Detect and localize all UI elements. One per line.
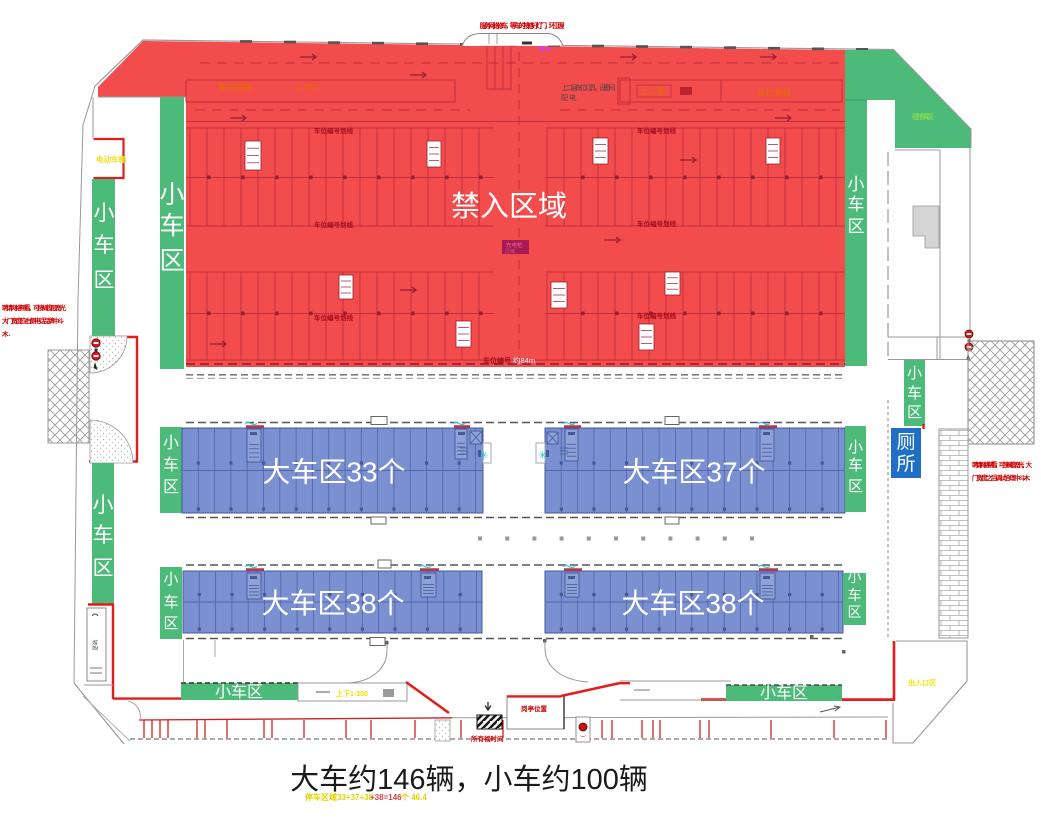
svg-text:个 46.4: 个 46.4 bbox=[400, 792, 427, 802]
svg-text:大车区33个: 大车区33个 bbox=[262, 457, 405, 488]
svg-text:+38=146: +38=146 bbox=[370, 793, 402, 802]
svg-text:小车区: 小车区 bbox=[760, 684, 808, 702]
svg-text:电动车棚: 电动车棚 bbox=[96, 154, 126, 164]
svg-text:小: 小 bbox=[94, 202, 115, 225]
svg-text:临时停车区: 临时停车区 bbox=[912, 112, 934, 121]
svg-text:区: 区 bbox=[159, 247, 184, 275]
svg-text:车: 车 bbox=[163, 456, 179, 474]
svg-text:车: 车 bbox=[163, 594, 178, 611]
svg-text:所有福时间: 所有福时间 bbox=[471, 734, 504, 743]
svg-text:区: 区 bbox=[907, 404, 922, 421]
svg-text:大车区37个: 大车区37个 bbox=[622, 457, 765, 488]
svg-text:小: 小 bbox=[848, 439, 863, 456]
svg-text:小: 小 bbox=[907, 365, 922, 382]
svg-text:区: 区 bbox=[93, 557, 114, 580]
svg-text:区: 区 bbox=[848, 604, 862, 620]
svg-text:车位编号划线: 车位编号划线 bbox=[314, 220, 354, 229]
svg-text:车: 车 bbox=[907, 385, 922, 402]
svg-text:小: 小 bbox=[848, 569, 862, 585]
svg-text:出入口区: 出入口区 bbox=[908, 678, 936, 687]
svg-text:区: 区 bbox=[848, 217, 865, 236]
svg-text:区: 区 bbox=[163, 615, 178, 632]
svg-text:小: 小 bbox=[163, 434, 179, 452]
svg-text:充电桩: 充电桩 bbox=[506, 241, 523, 249]
svg-text:停车区域33+37+38: 停车区域33+37+38 bbox=[305, 792, 374, 802]
svg-text:车位编号划线: 车位编号划线 bbox=[314, 126, 354, 135]
svg-text:1-200: 1-200 bbox=[296, 82, 318, 92]
svg-text:车位划线: 车位划线 bbox=[218, 82, 253, 92]
svg-text:✳: ✳ bbox=[538, 450, 547, 462]
svg-text:小: 小 bbox=[848, 175, 865, 194]
svg-text:厕: 厕 bbox=[896, 432, 915, 453]
svg-text:坡道: 坡道 bbox=[91, 639, 99, 651]
svg-text:车: 车 bbox=[94, 234, 115, 257]
svg-text:大车区38个: 大车区38个 bbox=[261, 588, 404, 619]
svg-text:车位编号划线: 车位编号划线 bbox=[637, 126, 677, 135]
svg-text:聘请网络帮看，可按绳揽限宽光: 聘请网络帮看，可按绳揽限宽光 bbox=[2, 303, 67, 312]
svg-text:区: 区 bbox=[94, 269, 115, 292]
svg-text:区: 区 bbox=[848, 478, 863, 495]
svg-text:大门宽度应右侧电话品牌中斗: 大门宽度应右侧电话品牌中斗 bbox=[2, 316, 65, 325]
svg-text:车位划线: 车位划线 bbox=[757, 88, 792, 98]
svg-text:小: 小 bbox=[159, 181, 184, 209]
svg-text:小: 小 bbox=[93, 494, 114, 517]
svg-text:木.: 木. bbox=[1, 329, 11, 338]
svg-text:小: 小 bbox=[163, 571, 178, 588]
svg-text:所: 所 bbox=[896, 453, 915, 475]
svg-text:车: 车 bbox=[159, 212, 184, 240]
svg-text:小车区: 小车区 bbox=[215, 683, 263, 701]
svg-text:车位编号划线: 车位编号划线 bbox=[637, 219, 677, 228]
svg-text:上二层: 上二层 bbox=[640, 86, 666, 96]
svg-text:门宽度之后调试合理中斗木.: 门宽度之后调试合理中斗木. bbox=[972, 473, 1031, 482]
svg-text:大车区38个: 大车区38个 bbox=[621, 588, 764, 619]
svg-text:聘请网络帮看，可按绳揽宽光，大: 聘请网络帮看，可按绳揽宽光，大 bbox=[972, 460, 1033, 469]
svg-text:车位编号划线: 车位编号划线 bbox=[637, 311, 677, 320]
svg-text:车: 车 bbox=[93, 524, 114, 547]
svg-text:上二层车位灯具，设备间.: 上二层车位灯具，设备间. bbox=[561, 83, 615, 92]
svg-text:区域: 区域 bbox=[505, 248, 515, 255]
svg-text:车位编号划线: 车位编号划线 bbox=[314, 313, 354, 322]
svg-text:车: 车 bbox=[848, 195, 865, 214]
svg-text:上下1-200: 上下1-200 bbox=[336, 689, 368, 698]
svg-text:服务网络修车，等车的按修好灯门，环卫理.: 服务网络修车，等车的按修好灯门，环卫理. bbox=[480, 21, 565, 30]
svg-text:车: 车 bbox=[848, 587, 862, 603]
svg-text:岗亭位置: 岗亭位置 bbox=[521, 704, 548, 713]
svg-text:大车约146辆，小车约100辆: 大车约146辆，小车约100辆 bbox=[290, 763, 648, 796]
svg-text:禁入区域: 禁入区域 bbox=[451, 190, 567, 223]
svg-text:区: 区 bbox=[163, 479, 179, 496]
svg-text:配电.: 配电. bbox=[561, 93, 579, 102]
svg-text:车: 车 bbox=[848, 457, 863, 474]
